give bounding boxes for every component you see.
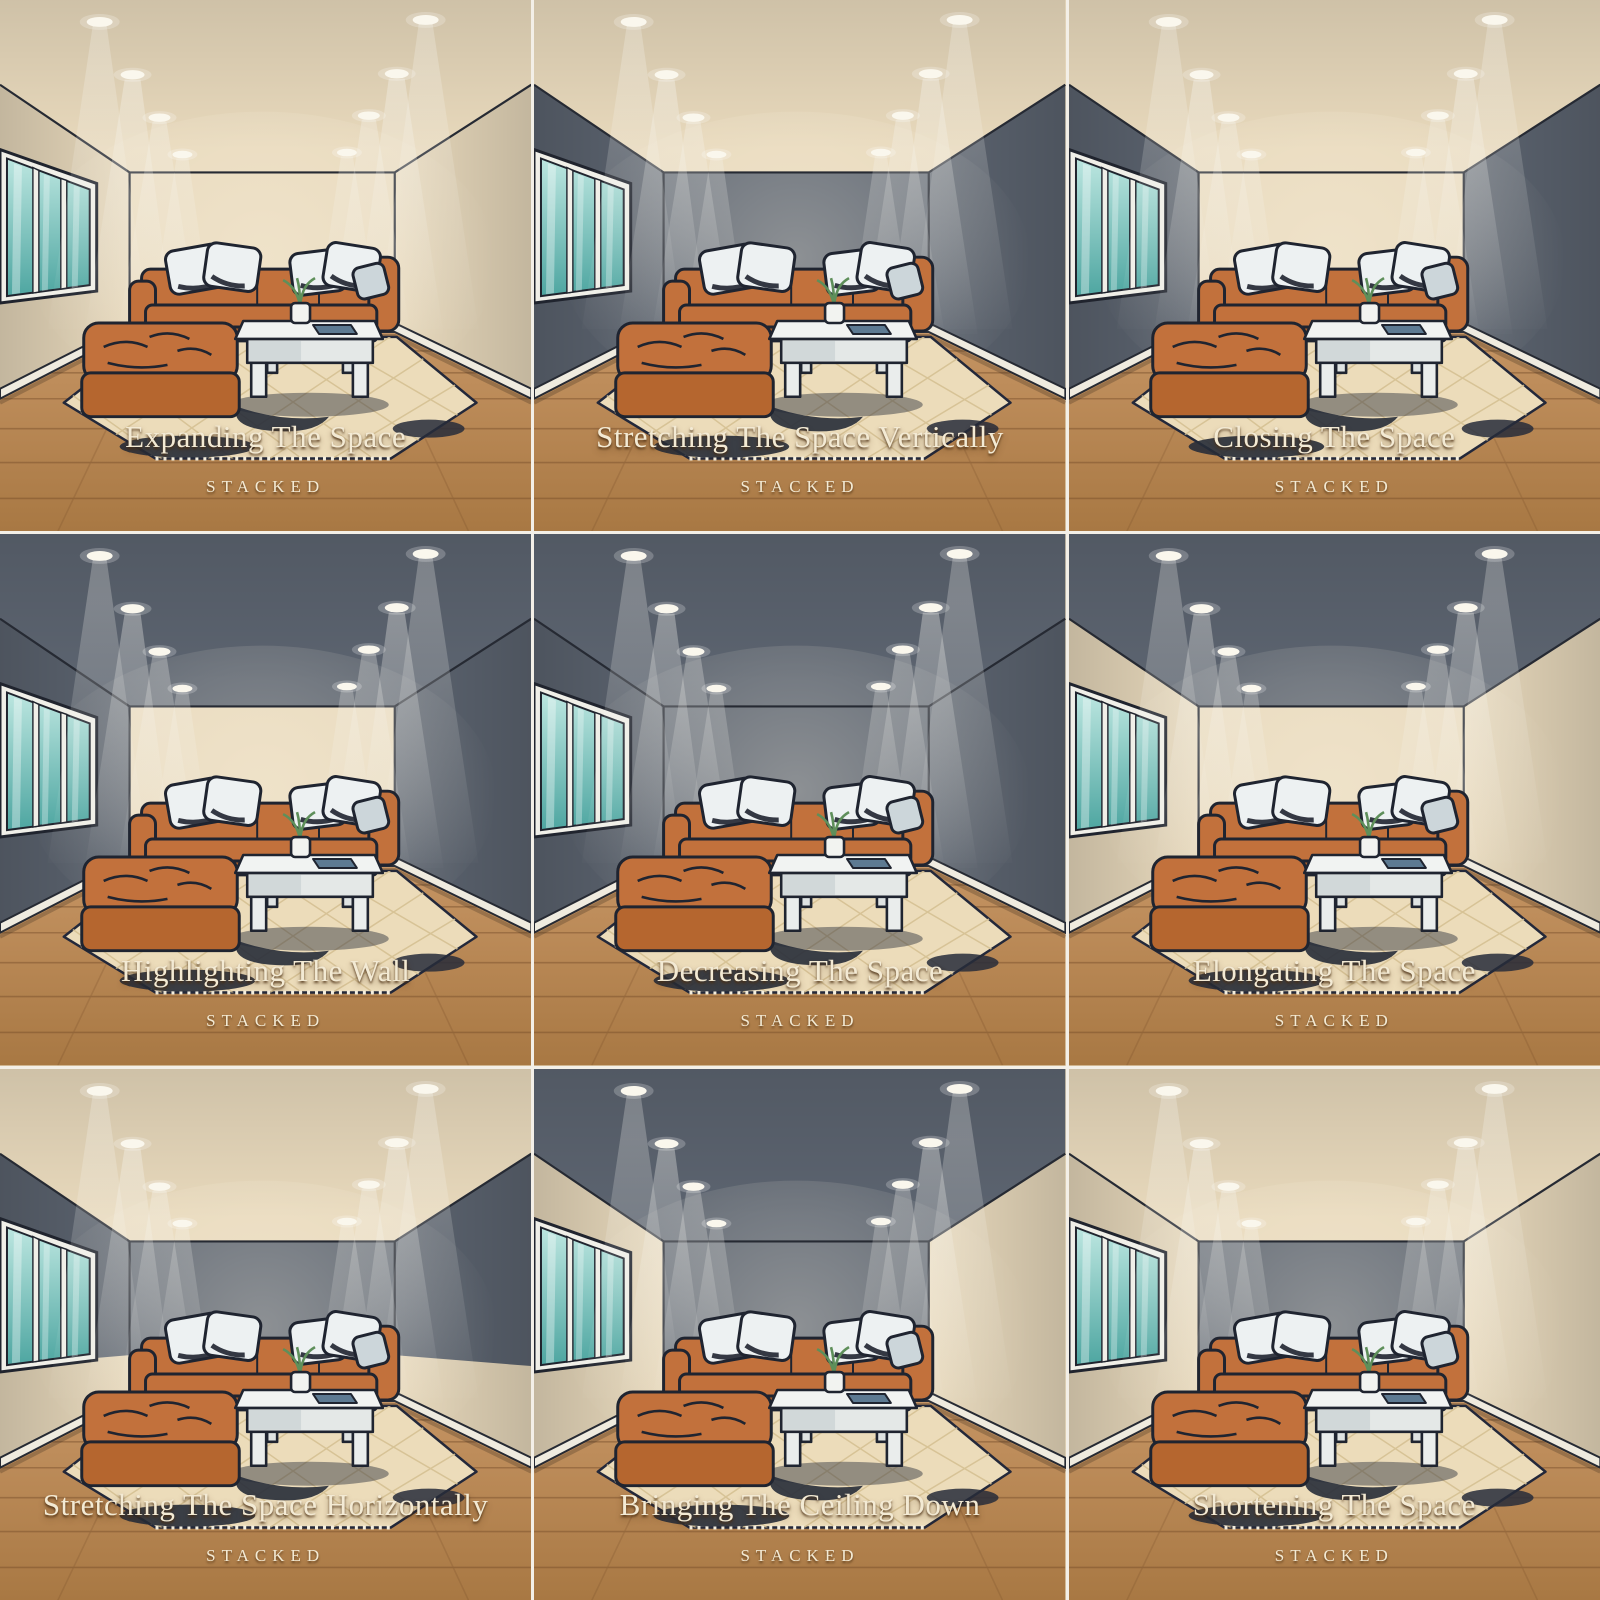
panel-stretching-the-space-vertically: Stretching The Space Vertically STACKED bbox=[534, 0, 1065, 531]
room-illustration bbox=[534, 1069, 1065, 1600]
room-illustration bbox=[1069, 0, 1600, 531]
panel-decreasing-the-space: Decreasing The Space STACKED bbox=[534, 534, 1065, 1065]
room-illustration bbox=[0, 534, 531, 1065]
panel-highlighting-the-wall: Highlighting The Wall STACKED bbox=[0, 534, 531, 1065]
room-illustration bbox=[1069, 1069, 1600, 1600]
panel-stretching-the-space-horizontally: Stretching The Space Horizontally STACKE… bbox=[0, 1069, 531, 1600]
room-illustration bbox=[1069, 534, 1600, 1065]
room-illustration bbox=[534, 534, 1065, 1065]
room-illustration bbox=[534, 0, 1065, 531]
panel-closing-the-space: Closing The Space STACKED bbox=[1069, 0, 1600, 531]
panel-bringing-the-ceiling-down: Bringing The Ceiling Down STACKED bbox=[534, 1069, 1065, 1600]
room-illustration bbox=[0, 0, 531, 531]
panel-expanding-the-space: Expanding The Space STACKED bbox=[0, 0, 531, 531]
infographic-grid: Expanding The Space STACKED bbox=[0, 0, 1600, 1600]
panel-shortening-the-space: Shortening The Space STACKED bbox=[1069, 1069, 1600, 1600]
panel-elongating-the-space: Elongating The Space STACKED bbox=[1069, 534, 1600, 1065]
room-illustration bbox=[0, 1069, 531, 1600]
